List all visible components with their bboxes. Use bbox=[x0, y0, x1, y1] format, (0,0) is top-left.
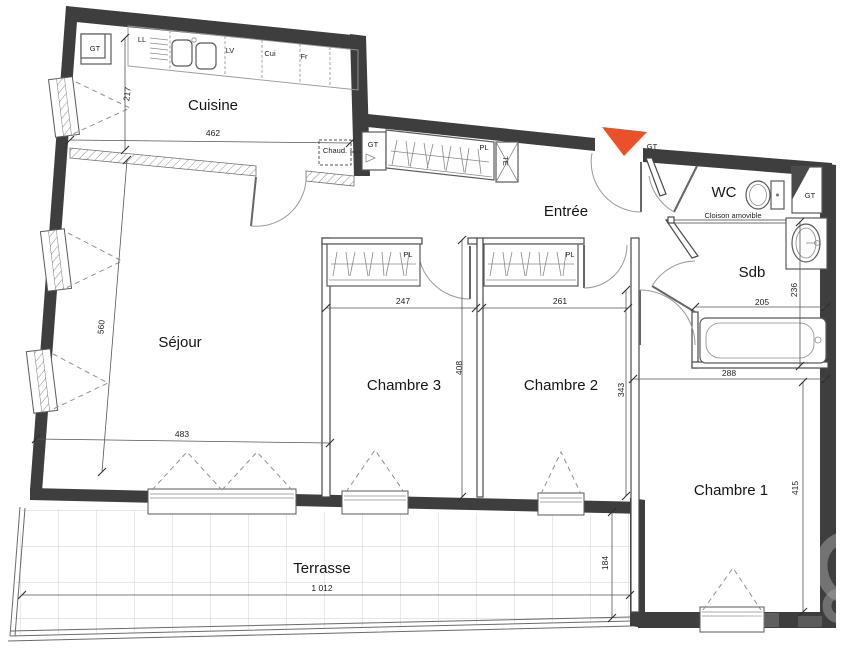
sdb-door-swing bbox=[652, 261, 695, 286]
dim-terrasse-depth: 184 bbox=[600, 556, 610, 570]
dim-sdb-height: 236 bbox=[789, 283, 799, 297]
bedroom-closets bbox=[327, 244, 578, 286]
entry-gt-duct bbox=[362, 132, 386, 170]
label-terrasse: Terrasse bbox=[293, 560, 351, 577]
label-sdb: Sdb bbox=[739, 264, 766, 281]
dim-chambre3-width: 247 bbox=[396, 296, 410, 306]
chambre2-door-swing bbox=[584, 245, 627, 288]
label-gt-wc: GT bbox=[805, 191, 816, 200]
dim-cuisine-width: 462 bbox=[206, 128, 220, 138]
dim-terrasse-width: 1 012 bbox=[311, 583, 333, 593]
dim-chambre2-width: 261 bbox=[553, 296, 567, 306]
label-pl-chambre2: PL bbox=[565, 250, 574, 259]
label-lv: LV bbox=[226, 46, 235, 55]
label-cuisine: Cuisine bbox=[188, 97, 238, 114]
kitchen-door-swing bbox=[251, 181, 306, 226]
sink-basin-right bbox=[196, 43, 216, 69]
wall-hall-chambre1 bbox=[631, 238, 639, 612]
kitchen-divider bbox=[70, 148, 354, 186]
sink-faucet bbox=[192, 38, 196, 42]
window-sejour-terrace bbox=[148, 489, 296, 514]
wall-chambre3-door-jamb bbox=[468, 238, 477, 244]
cloison-end-post bbox=[668, 217, 674, 223]
dim-chambre1-width: 288 bbox=[722, 368, 736, 378]
dim-chambre3-height: 408 bbox=[454, 361, 464, 375]
window-chambre3 bbox=[342, 491, 408, 514]
label-pl-entry: PL bbox=[479, 143, 488, 152]
label-entree: Entrée bbox=[544, 203, 588, 220]
dim-chambre1-height: 415 bbox=[790, 481, 800, 495]
floor-plan-drawing: 217 462 560 483 247 408 261 343 205 236 … bbox=[0, 0, 860, 651]
label-chambre1: Chambre 1 bbox=[694, 482, 768, 499]
sink-drainboard bbox=[150, 38, 168, 60]
label-gt-kitchen: GT bbox=[90, 44, 101, 53]
kitchen-bar-left bbox=[70, 148, 256, 176]
dim-sejour-height: 560 bbox=[95, 319, 106, 334]
label-te: TE bbox=[501, 156, 510, 166]
cloison-amovible-partition bbox=[672, 220, 790, 223]
label-pl-chambre3: PL bbox=[403, 250, 412, 259]
dim-sejour-width: 483 bbox=[175, 429, 189, 439]
entrance-arrow-icon bbox=[602, 127, 647, 156]
dim-cuisine-depth: 217 bbox=[121, 86, 133, 102]
label-sejour: Séjour bbox=[158, 334, 201, 351]
label-cloison-amovible: Cloison amovible bbox=[704, 211, 761, 220]
label-gt-entry: GT bbox=[368, 140, 379, 149]
watermark-glyph-4 bbox=[798, 616, 822, 627]
label-wc: WC bbox=[712, 184, 737, 201]
label-ll: LL bbox=[138, 35, 146, 44]
entrance-door-swing bbox=[591, 153, 641, 212]
dim-chambre2-height: 343 bbox=[616, 383, 626, 397]
label-gt-door: GT bbox=[647, 142, 658, 151]
wc-door-leaf bbox=[674, 166, 697, 212]
window-chambre2 bbox=[538, 493, 584, 515]
wall-chambre2-top bbox=[483, 238, 584, 244]
watermark-glyph-3 bbox=[745, 613, 779, 627]
sdb-door-leaf bbox=[652, 286, 695, 312]
dim-sdb-width: 205 bbox=[755, 297, 769, 307]
left-windows bbox=[26, 77, 130, 413]
label-fr: Fr bbox=[300, 52, 308, 61]
toilet-button bbox=[776, 194, 779, 197]
label-cui: Cui bbox=[264, 49, 276, 58]
entrance-marker bbox=[602, 127, 647, 156]
label-chambre2: Chambre 2 bbox=[524, 377, 598, 394]
label-chambre3: Chambre 3 bbox=[367, 377, 441, 394]
watermark-glyph-2 bbox=[827, 593, 853, 619]
wall-chambre3-chambre2 bbox=[477, 238, 483, 497]
wall-chambre3-top bbox=[322, 238, 422, 244]
floor-plan-page: 217 462 560 483 247 408 261 343 205 236 … bbox=[0, 0, 860, 651]
chambre1-door-swing bbox=[640, 290, 695, 345]
wall-sdb-slanted bbox=[666, 220, 698, 258]
sink-basin-left bbox=[172, 40, 192, 66]
kitchen-door-leaf bbox=[251, 177, 256, 226]
kitchen-bar-right bbox=[306, 171, 354, 186]
label-chaud: Chaud. bbox=[323, 146, 347, 155]
